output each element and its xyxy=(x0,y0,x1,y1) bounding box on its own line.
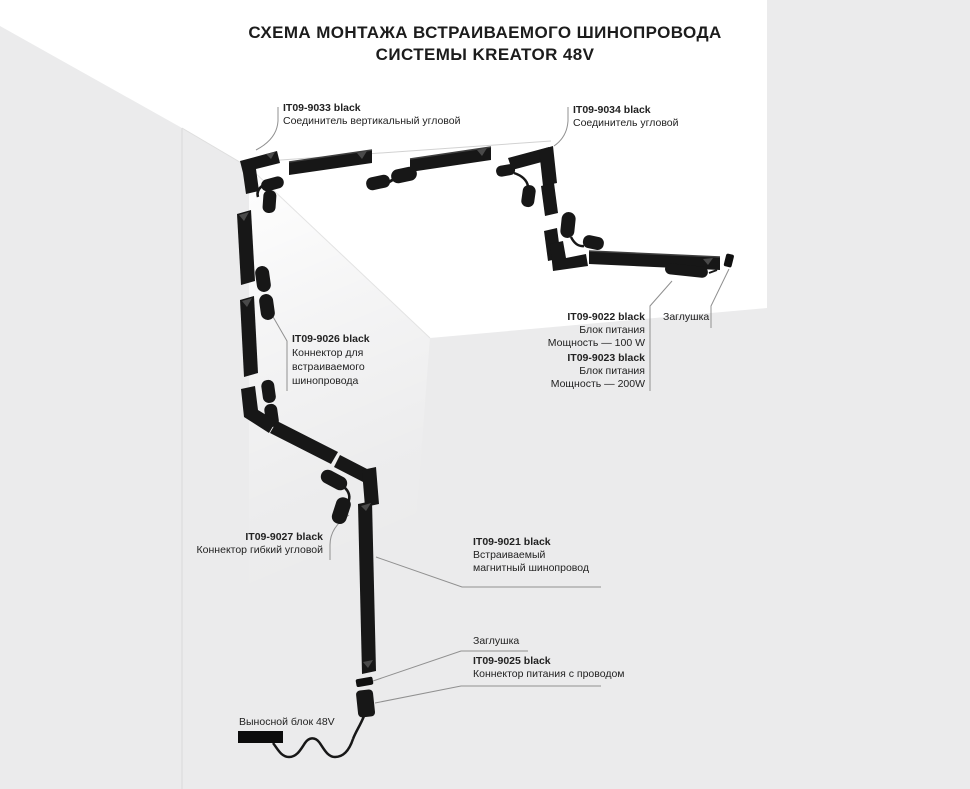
part-number: IT09-9025 black xyxy=(473,655,625,668)
label-it9023: IT09-9023 black Блок питания Мощность — … xyxy=(551,352,645,391)
corner-connector xyxy=(362,467,379,507)
label-it9034: IT09-9034 black Соединитель угловой xyxy=(573,104,678,130)
part-number: IT09-9033 black xyxy=(283,102,460,115)
part-number: IT09-9021 black xyxy=(473,536,589,549)
label-endcap-top: Заглушка xyxy=(663,311,709,324)
power-feed-connector xyxy=(356,689,376,718)
part-desc: Соединитель вертикальный угловой xyxy=(283,115,460,128)
part-desc: Заглушка xyxy=(663,311,709,324)
part-desc: Блок питания xyxy=(548,324,645,337)
title-line-1: СХЕМА МОНТАЖА ВСТРАИВАЕМОГО ШИНОПРОВОДА xyxy=(0,22,970,44)
label-it9022: IT09-9022 black Блок питания Мощность — … xyxy=(548,311,645,350)
label-it9025: IT09-9025 black Коннектор питания с пров… xyxy=(473,655,625,681)
part-number: IT09-9034 black xyxy=(573,104,678,117)
page-title: СХЕМА МОНТАЖА ВСТРАИВАЕМОГО ШИНОПРОВОДА … xyxy=(0,22,970,66)
part-desc: Встраиваемый xyxy=(473,549,589,562)
remote-driver-block xyxy=(238,731,283,743)
label-it9021: IT09-9021 black Встраиваемый магнитный ш… xyxy=(473,536,589,575)
part-desc: встраиваемого xyxy=(292,360,370,374)
part-desc: Мощность — 100 W xyxy=(548,337,645,350)
label-it9027: IT09-9027 black Коннектор гибкий угловой xyxy=(197,531,323,557)
part-desc: Выносной блок 48V xyxy=(239,716,335,729)
part-number: IT09-9022 black xyxy=(548,311,645,324)
part-desc: шинопровода xyxy=(292,374,370,388)
part-desc: Коннектор для xyxy=(292,346,370,360)
part-desc: Коннектор гибкий угловой xyxy=(197,544,323,557)
part-number: IT09-9023 black xyxy=(551,352,645,365)
label-remote-block: Выносной блок 48V xyxy=(239,716,335,729)
part-desc: Коннектор питания с проводом xyxy=(473,668,625,681)
part-desc: Соединитель угловой xyxy=(573,117,678,130)
part-desc: Мощность — 200W xyxy=(551,378,645,391)
label-endcap-bottom: Заглушка xyxy=(473,635,519,648)
installation-scheme-page: СХЕМА МОНТАЖА ВСТРАИВАЕМОГО ШИНОПРОВОДА … xyxy=(0,0,970,789)
part-desc: Заглушка xyxy=(473,635,519,648)
part-number: IT09-9027 black xyxy=(197,531,323,544)
part-number: IT09-9026 black xyxy=(292,332,370,346)
label-it9033: IT09-9033 black Соединитель вертикальный… xyxy=(283,102,460,128)
title-line-2: СИСТЕМЫ KREATOR 48V xyxy=(0,44,970,66)
part-desc: магнитный шинопровод xyxy=(473,562,589,575)
part-desc: Блок питания xyxy=(551,365,645,378)
label-it9026: IT09-9026 black Коннектор для встраиваем… xyxy=(292,332,370,388)
